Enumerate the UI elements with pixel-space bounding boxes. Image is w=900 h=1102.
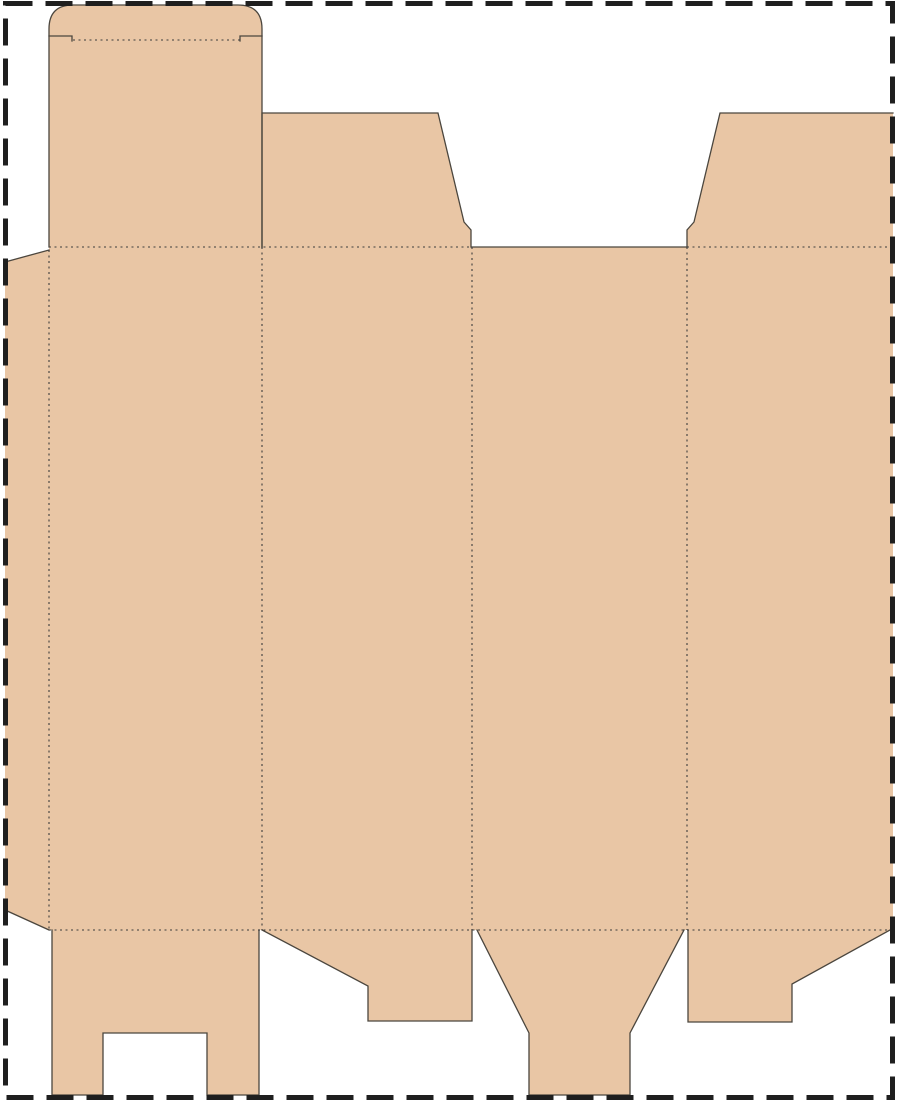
bottom-flap-with-notch [52,930,259,1095]
dieline-canvas [0,0,900,1102]
bottom-tongue-flap [477,930,684,1095]
bottom-lock-flap-left [262,930,472,1021]
board-fills [5,5,893,1095]
bottom-lock-flap-right [688,930,890,1022]
glue-flap [5,250,49,930]
tuck-lid-flap [49,5,262,247]
main-panels [49,247,893,930]
dieline-drawing [0,0,900,1102]
top-dust-flap-left [262,113,471,247]
top-dust-flap-right [687,113,893,247]
